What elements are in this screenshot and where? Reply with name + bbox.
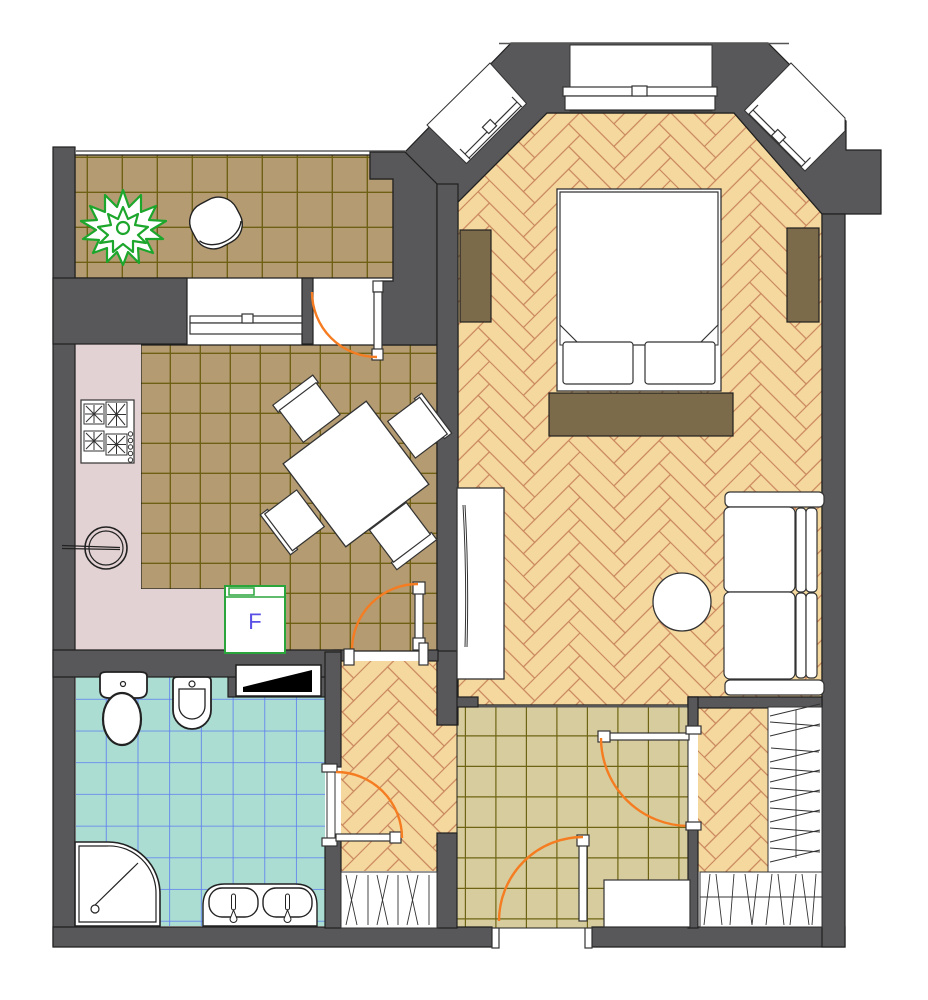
svg-text:F: F — [248, 609, 261, 634]
